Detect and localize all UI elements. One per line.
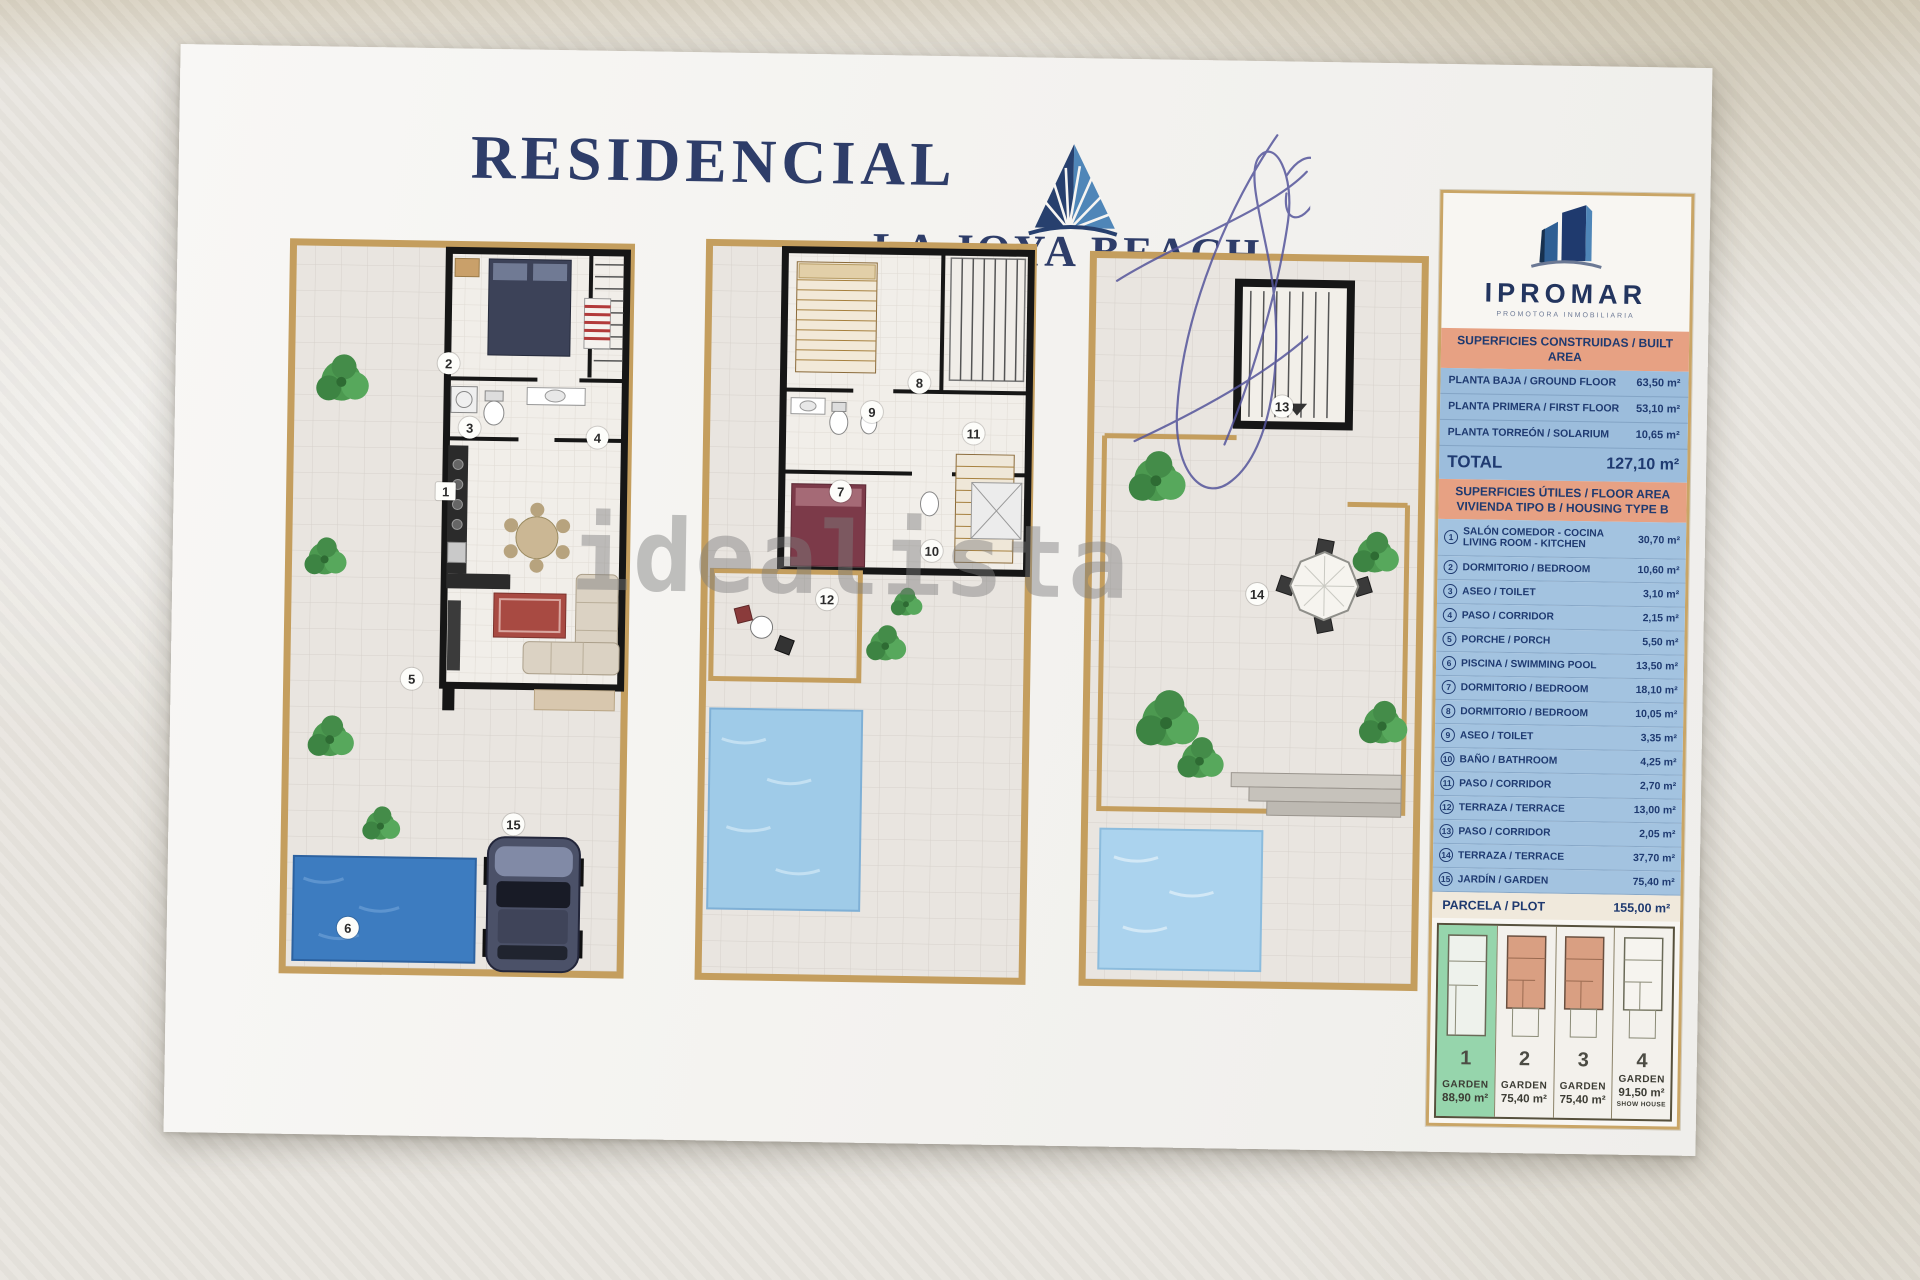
toilet — [830, 402, 849, 434]
row-number-badge: 12 — [1440, 800, 1454, 814]
row-number-badge: 6 — [1442, 656, 1456, 670]
row-number-badge: 10 — [1440, 752, 1454, 766]
brand-tagline: PROMOTORA INMOBILIARIA — [1496, 311, 1634, 320]
row-number-badge: 9 — [1441, 728, 1455, 742]
watermark-text: idealista — [570, 496, 1132, 622]
plot-footprint — [1561, 932, 1609, 1041]
row-number-badge: 7 — [1442, 680, 1456, 694]
brochure-sheet: RESIDENCIAL LA JOYA BEACH idealista — [164, 44, 1713, 1156]
floor-area-row: 1 SALÓN COMEDOR - COCINA LIVING ROOM - K… — [1438, 519, 1687, 560]
brand-name: IPROMAR — [1484, 278, 1647, 312]
site-plot-1: 1 GARDEN 88,90 m² — [1436, 925, 1498, 1117]
page-title: RESIDENCIAL — [470, 123, 957, 202]
room-label-living: 1 — [436, 482, 456, 500]
row-number-badge: 14 — [1439, 848, 1453, 862]
bed-double — [488, 259, 571, 356]
row-number-badge: 4 — [1443, 608, 1457, 622]
sink-counter — [527, 388, 585, 406]
stairs — [949, 258, 1025, 381]
site-plan-strip: 1 GARDEN 88,90 m² 2 GARDEN 75,40 m² — [1434, 923, 1675, 1122]
striped-rug — [584, 298, 611, 348]
solarium-plan: 13 14 — [1078, 250, 1430, 991]
brand-block: IPROMAR PROMOTORA INMOBILIARIA — [1441, 193, 1691, 332]
stairwell — [1237, 283, 1351, 427]
sink-counter — [791, 398, 825, 415]
row-number-badge: 8 — [1441, 704, 1455, 718]
toilet — [484, 391, 505, 425]
porch-mat — [534, 690, 614, 711]
row-number-badge: 1 — [1444, 530, 1458, 544]
plot-row: PARCELA / PLOT 155,00 m² — [1432, 892, 1680, 922]
info-sidebar: IPROMAR PROMOTORA INMOBILIARIA SUPERFICI… — [1426, 190, 1695, 1130]
built-area-row: PLANTA TORREÓN / SOLARIUM 10,65 m² — [1439, 420, 1687, 450]
ipromar-buildings-icon — [1527, 205, 1606, 278]
plot-footprint — [1619, 933, 1667, 1042]
living-rug — [493, 593, 566, 638]
row-number-badge: 11 — [1440, 776, 1454, 790]
parked-car — [482, 837, 584, 973]
built-area-table: PLANTA BAJA / GROUND FLOOR 63,50 m² PLAN… — [1439, 368, 1689, 483]
swimming-pool — [292, 856, 476, 963]
row-number-badge: 3 — [1443, 584, 1457, 598]
plot-footprint — [1502, 932, 1550, 1041]
floor-area-header: SUPERFICIES ÚTILES / FLOOR AREA VIVIENDA… — [1438, 479, 1687, 523]
tv-unit — [447, 600, 461, 670]
row-number-badge: 5 — [1442, 632, 1456, 646]
row-number-badge: 13 — [1439, 824, 1453, 838]
floor-area-table: 1 SALÓN COMEDOR - COCINA LIVING ROOM - K… — [1432, 519, 1686, 896]
built-area-row: PLANTA BAJA / GROUND FLOOR 63,50 m² — [1440, 368, 1688, 398]
row-number-badge: 15 — [1439, 872, 1453, 886]
washing-machine — [451, 386, 477, 412]
plot-footprint — [1443, 931, 1491, 1040]
bed-slatted — [796, 262, 878, 373]
row-number-badge: 2 — [1443, 560, 1457, 574]
site-plot-2: 2 GARDEN 75,40 m² — [1495, 925, 1557, 1117]
built-area-header: SUPERFICIES CONSTRUIDAS / BUILT AREA — [1441, 328, 1690, 372]
solarium-drawing — [1078, 250, 1430, 991]
site-plot-3: 3 GARDEN 75,40 m² — [1553, 926, 1615, 1118]
swimming-pool — [1098, 829, 1262, 972]
site-plot-4: 4 GARDEN 91,50 m² SHOW HOUSE — [1612, 927, 1673, 1119]
built-area-row: PLANTA PRIMERA / FIRST FLOOR 53,10 m² — [1440, 394, 1688, 424]
swimming-pool — [707, 708, 862, 910]
built-area-total-row: TOTAL 127,10 m² — [1439, 446, 1687, 483]
